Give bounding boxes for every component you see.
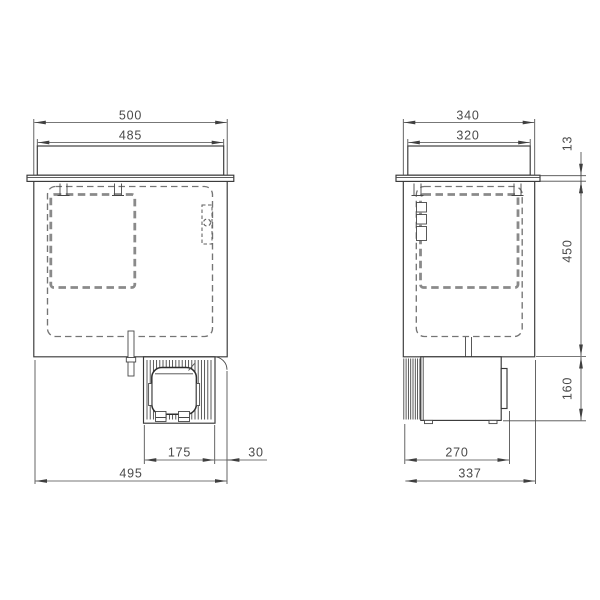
compressor-foot	[179, 412, 190, 422]
dim-side-worktop-thickness: 13	[540, 136, 586, 196]
dim-label: 30	[248, 446, 264, 460]
compressor-body	[152, 368, 197, 415]
dim-side-lid-depth: 320	[408, 129, 530, 147]
front-compressor-unit	[144, 357, 216, 423]
front-drain-pipe	[126, 331, 135, 376]
front-lid	[37, 146, 223, 175]
compressor-foot	[425, 420, 433, 423]
side-lid	[408, 146, 530, 175]
dim-label: 320	[456, 129, 479, 143]
dim-label: 270	[445, 446, 468, 460]
side-inner-liner	[416, 187, 522, 337]
dim-front-compressor-width: 175	[144, 425, 214, 464]
front-body	[34, 181, 227, 356]
side-evaporator	[421, 195, 519, 288]
side-view	[396, 146, 540, 424]
dim-label: 13	[561, 136, 575, 152]
front-pipe-bend	[214, 357, 227, 370]
front-view	[27, 146, 234, 423]
compressor-tab	[501, 369, 507, 409]
compressor-housing-side	[421, 357, 501, 421]
dim-front-lid-width: 485	[37, 129, 223, 147]
dim-side-compressor-height: 160	[503, 357, 586, 421]
drawing-canvas: 500 485 175 30 495	[0, 0, 600, 600]
condenser-fins-side	[404, 359, 420, 420]
side-bracket-stack	[417, 203, 427, 241]
technical-drawing: 500 485 175 30 495	[0, 0, 600, 600]
dim-front-rear-offset: 30	[215, 446, 267, 461]
compressor-foot	[156, 412, 167, 422]
dim-side-body-height: 450	[536, 182, 586, 357]
dim-label: 337	[458, 467, 481, 481]
side-compressor-unit	[404, 357, 507, 424]
dim-label: 500	[119, 109, 142, 123]
dim-label: 340	[456, 109, 479, 123]
side-worktop	[396, 175, 540, 181]
dim-label: 485	[119, 129, 142, 143]
dim-label: 160	[561, 377, 575, 400]
side-drain-pipe	[466, 337, 472, 357]
front-side-duct	[202, 205, 212, 244]
dim-label: 175	[168, 446, 191, 460]
compressor-foot	[489, 420, 497, 423]
dim-label: 495	[119, 467, 142, 481]
front-worktop	[27, 175, 234, 181]
front-inner-liner	[48, 187, 213, 337]
front-evaporator	[51, 195, 135, 288]
dim-label: 450	[561, 239, 575, 262]
